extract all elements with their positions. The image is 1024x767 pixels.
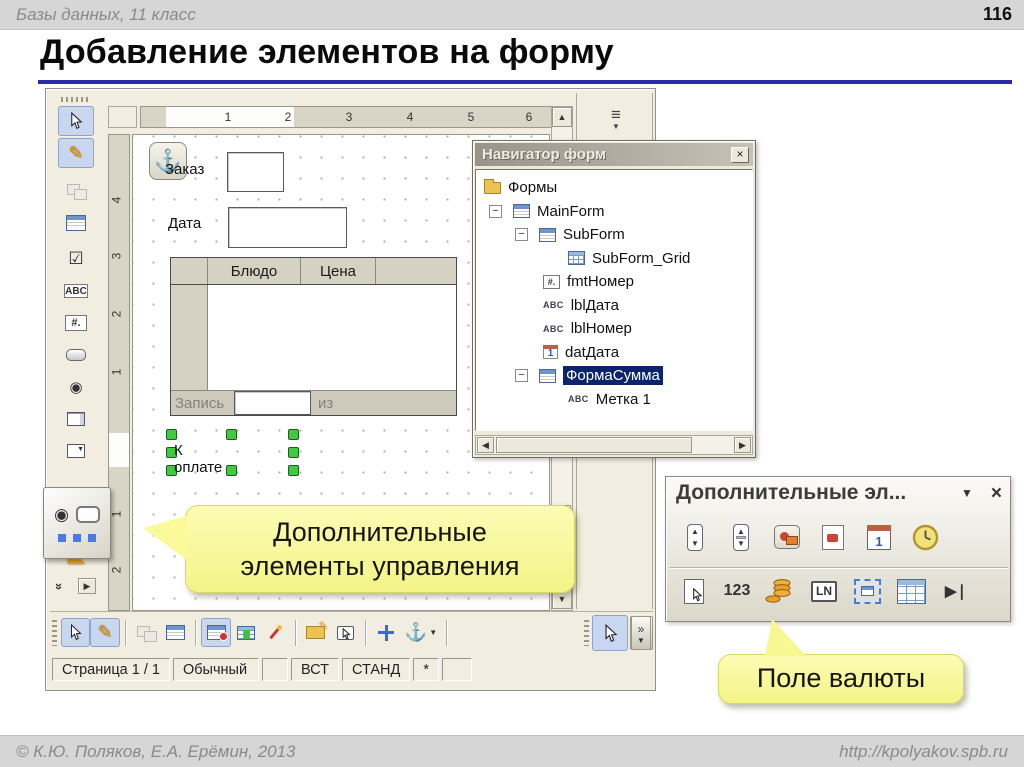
form-navigator-window: Навигатор форм × Формы − MainForm − SubF… bbox=[472, 140, 756, 458]
time-field-control[interactable] bbox=[904, 515, 946, 559]
grid-column-empty bbox=[376, 258, 456, 284]
tree-item-label: datДата bbox=[565, 344, 619, 361]
scrollbar-icon: ▲▼ bbox=[733, 524, 749, 551]
caret-down-icon: ▼ bbox=[429, 628, 437, 637]
slide-footer-bar: © К.Ю. Поляков, Е.А. Ерёмин, 2013 http:/… bbox=[0, 735, 1024, 767]
chevrons-icon: » bbox=[638, 622, 645, 636]
tree-item-datdata[interactable]: 1 datДата bbox=[478, 341, 750, 365]
grid-data-area bbox=[208, 285, 456, 390]
toolbar-more-chevrons-icon[interactable]: » bbox=[52, 582, 67, 589]
control-properties-button[interactable] bbox=[131, 618, 161, 647]
formatted-field-icon: #. bbox=[65, 315, 87, 331]
status-page-style[interactable]: Обычный bbox=[173, 658, 259, 681]
form-icon bbox=[513, 204, 530, 218]
abc-label-icon: ABC bbox=[543, 324, 564, 334]
toolbar-separator bbox=[446, 620, 447, 646]
checkbox-icon: ☑ bbox=[68, 249, 83, 269]
more-controls-callout: Дополнительные элементы управления bbox=[185, 505, 575, 593]
move-arrows-icon bbox=[378, 625, 394, 641]
tree-item-subform-grid[interactable]: SubForm_Grid bbox=[478, 247, 750, 271]
toolbar-separator bbox=[365, 620, 366, 646]
control-properties-icon bbox=[137, 626, 155, 640]
tree-item-lbldata[interactable]: ABC lblДата bbox=[478, 294, 750, 318]
record-number-input[interactable] bbox=[234, 391, 311, 415]
focus-box-icon bbox=[337, 626, 354, 640]
radio-button-icon: ◉ bbox=[54, 505, 69, 525]
numeric-field-icon: 123 bbox=[724, 582, 751, 600]
grid-record-navigator: Запись из bbox=[171, 390, 456, 415]
toolbar-separator bbox=[195, 620, 196, 646]
record-label: Запись bbox=[171, 391, 234, 415]
status-page[interactable]: Страница 1 / 1 bbox=[52, 658, 170, 681]
scrollbar-control[interactable]: ▲▼ bbox=[720, 515, 762, 559]
anchor-icon: ⚓ bbox=[405, 622, 427, 643]
table-grid-icon bbox=[897, 579, 926, 604]
status-bar: Страница 1 / 1 Обычный ВСТ СТАНД * bbox=[50, 655, 651, 684]
tree-item-metka1[interactable]: ABC Метка 1 bbox=[478, 388, 750, 412]
ruler-page-area bbox=[109, 433, 129, 467]
record-of-label: из bbox=[311, 391, 456, 415]
change-anchor-button[interactable]: ⚓ ▼ bbox=[401, 618, 441, 647]
currency-coins-icon bbox=[765, 577, 795, 605]
image-control-icon bbox=[822, 525, 844, 550]
form-icon bbox=[539, 369, 556, 383]
control-properties-icon bbox=[67, 184, 85, 198]
option-button-control-button[interactable]: ◉ bbox=[58, 372, 94, 402]
grid-green-icon bbox=[237, 626, 255, 640]
selection-handle[interactable] bbox=[226, 429, 237, 440]
ruler-number: 1 bbox=[109, 511, 123, 518]
navigation-bar-control[interactable]: ▶❘ bbox=[936, 569, 976, 613]
grid-header-row: Блюдо Цена bbox=[171, 258, 456, 285]
more-controls-button[interactable]: ◉ bbox=[43, 487, 111, 559]
table-control[interactable] bbox=[891, 569, 931, 613]
ruler-number: 6 bbox=[526, 110, 533, 124]
ruler-number: 2 bbox=[109, 311, 123, 318]
list-box-control-button[interactable] bbox=[58, 404, 94, 434]
pencil-icon: ✎ bbox=[98, 622, 113, 643]
form-navigator-button[interactable] bbox=[201, 618, 231, 647]
date-field-control[interactable]: 1 bbox=[858, 515, 900, 559]
order-text-input[interactable] bbox=[227, 152, 284, 192]
navigator-title: Навигатор форм bbox=[482, 146, 731, 163]
callout-text: Поле валюты bbox=[719, 663, 963, 694]
callout-tail bbox=[143, 516, 187, 560]
control-wizards-button[interactable] bbox=[261, 618, 291, 647]
selection-handle[interactable] bbox=[288, 465, 299, 476]
image-button-control[interactable] bbox=[766, 515, 808, 559]
pattern-field-icon: LN bbox=[811, 581, 837, 602]
tree-item-label-selected: ФормаСумма bbox=[563, 366, 663, 385]
spin-button-icon: ▲▼ bbox=[687, 524, 703, 551]
status-empty-cell bbox=[262, 658, 288, 681]
copyright-label: © К.Ю. Поляков, Е.А. Ерёмин, 2013 bbox=[16, 742, 296, 762]
group-box-control[interactable] bbox=[847, 569, 887, 613]
toolbar-separator bbox=[295, 620, 296, 646]
table-grid-icon bbox=[568, 251, 585, 265]
ruler-number: 3 bbox=[109, 253, 123, 260]
callout-tail bbox=[765, 619, 806, 656]
auto-control-focus-button[interactable] bbox=[331, 618, 361, 647]
ruler-number: 1 bbox=[225, 110, 232, 124]
selection-handle[interactable] bbox=[288, 429, 299, 440]
push-button-icon bbox=[76, 506, 100, 523]
tree-item-mainform[interactable]: − MainForm bbox=[478, 200, 750, 224]
close-icon[interactable]: × bbox=[991, 484, 1002, 503]
tree-item-label: lblНомер bbox=[571, 320, 632, 337]
abc-label-icon: ABC bbox=[543, 300, 564, 310]
selection-handle[interactable] bbox=[288, 447, 299, 458]
close-button[interactable]: × bbox=[731, 147, 749, 163]
image-control[interactable] bbox=[812, 515, 854, 559]
numeric-field-control[interactable]: 123 bbox=[717, 569, 757, 613]
label-control-button[interactable]: ABC bbox=[58, 276, 94, 306]
cursor-arrow-icon bbox=[69, 624, 82, 641]
date-field-label: Дата bbox=[168, 215, 201, 232]
form-properties-button[interactable] bbox=[58, 208, 94, 238]
slide-header-bar: Базы данных, 11 класс 116 bbox=[0, 0, 1024, 30]
image-button-icon bbox=[774, 525, 800, 549]
calendar-icon: 1 bbox=[543, 345, 558, 359]
selection-handle[interactable] bbox=[166, 429, 177, 440]
ruler-number: 4 bbox=[109, 197, 123, 204]
file-selection-icon bbox=[684, 579, 704, 604]
ruler-number: 4 bbox=[407, 110, 414, 124]
tree-item-label: MainForm bbox=[537, 203, 605, 220]
scrollbar-thumb[interactable] bbox=[496, 437, 692, 453]
callout-text-line2: элементы управления bbox=[186, 550, 574, 584]
additional-toolbar-title: Дополнительные эл... bbox=[676, 481, 961, 505]
form-properties-button[interactable] bbox=[161, 618, 191, 647]
pattern-field-control[interactable]: LN bbox=[804, 569, 844, 613]
combo-box-icon bbox=[67, 444, 85, 458]
caret-down-icon[interactable]: ▼ bbox=[961, 486, 973, 500]
toolbar-separator bbox=[125, 620, 126, 646]
ruler-number: 5 bbox=[468, 110, 475, 124]
folder-icon bbox=[484, 182, 501, 194]
toolbar-row-separator bbox=[670, 567, 1008, 568]
select-button[interactable] bbox=[592, 615, 628, 651]
form-design-toolbar: ✎ ⚓ ▼ » ▼ bbox=[50, 611, 653, 653]
grid-row-selector-header bbox=[171, 258, 208, 284]
design-mode-button[interactable]: ✎ bbox=[58, 138, 94, 168]
tree-item-label: Метка 1 bbox=[596, 391, 651, 408]
formatted-field-button[interactable]: #. bbox=[58, 308, 94, 338]
position-size-button[interactable] bbox=[371, 618, 401, 647]
radio-button-icon: ◉ bbox=[69, 378, 82, 396]
form-icon bbox=[539, 228, 556, 242]
design-mode-button[interactable]: ✎ bbox=[90, 618, 120, 647]
toolbar-grip[interactable] bbox=[584, 620, 589, 646]
status-modified-flag[interactable]: * bbox=[413, 658, 439, 681]
checkbox-control-button[interactable]: ☑ bbox=[58, 244, 94, 274]
toolbar-overflow-row: » ▶ bbox=[56, 578, 96, 594]
vertical-ruler[interactable]: 4 3 2 1 1 2 bbox=[108, 134, 130, 611]
tree-item-lblnomer[interactable]: ABC lblНомер bbox=[478, 317, 750, 341]
form-navigator-icon bbox=[207, 625, 226, 640]
caret-down-icon: ▼ bbox=[612, 122, 620, 131]
list-box-icon bbox=[67, 412, 85, 426]
callout-text-line1: Дополнительные bbox=[186, 516, 574, 550]
select-button[interactable] bbox=[61, 618, 91, 647]
push-button-control-button[interactable] bbox=[58, 340, 94, 370]
grid-column-dish[interactable]: Блюдо bbox=[208, 258, 301, 284]
control-properties-button[interactable] bbox=[58, 176, 94, 206]
group-box-icon bbox=[854, 579, 881, 604]
additional-toolbar-title-bar[interactable]: Дополнительные эл... ▼ × bbox=[666, 477, 1010, 509]
selection-handle[interactable] bbox=[226, 465, 237, 476]
navigator-horizontal-scrollbar[interactable]: ◀ ▶ bbox=[475, 435, 753, 455]
date-field-icon: 1 bbox=[867, 525, 891, 550]
horizontal-ruler[interactable]: 1 2 3 4 5 6 bbox=[140, 106, 561, 128]
toolbar-grip[interactable] bbox=[52, 620, 57, 646]
order-field-label: Заказ bbox=[165, 161, 204, 178]
more-dots-icon bbox=[58, 534, 96, 542]
toolbar-options-button[interactable]: ≡ ▼ bbox=[601, 105, 631, 133]
status-insert-mode[interactable]: ВСТ bbox=[291, 658, 339, 681]
collapse-icon[interactable]: − bbox=[515, 369, 528, 382]
formatted-field-icon: #. bbox=[543, 275, 560, 289]
tree-item-forms[interactable]: Формы bbox=[478, 176, 750, 200]
currency-field-callout: Поле валюты bbox=[718, 654, 964, 704]
ruler-number: 2 bbox=[285, 110, 292, 124]
title-underline bbox=[38, 80, 1012, 84]
additional-controls-toolbar: Дополнительные эл... ▼ × ▲▼ ▲▼ 1 123 LN … bbox=[665, 476, 1011, 622]
combo-box-control-button[interactable] bbox=[58, 436, 94, 466]
status-selection-mode[interactable]: СТАНД bbox=[342, 658, 410, 681]
form-window-icon bbox=[166, 625, 185, 640]
tree-item-label: SubForm bbox=[563, 226, 625, 243]
clock-icon bbox=[912, 524, 939, 551]
collapse-icon[interactable]: − bbox=[515, 228, 528, 241]
form-window-icon bbox=[66, 215, 86, 231]
caret-down-icon: ▼ bbox=[637, 636, 645, 645]
ruler-number: 3 bbox=[346, 110, 353, 124]
tree-item-label: lblДата bbox=[571, 297, 619, 314]
status-empty-cell bbox=[442, 658, 472, 681]
navigator-tree[interactable]: Формы − MainForm − SubForm SubForm_Grid … bbox=[475, 169, 753, 431]
open-in-design-mode-button[interactable] bbox=[301, 618, 331, 647]
select-button[interactable] bbox=[58, 106, 94, 136]
scroll-up-button[interactable]: ▲ bbox=[552, 107, 572, 127]
currency-field-control[interactable] bbox=[760, 569, 800, 613]
push-button-icon bbox=[66, 349, 86, 361]
folder-pencil-icon bbox=[306, 626, 325, 639]
tree-item-subform[interactable]: − SubForm bbox=[478, 223, 750, 247]
select-mini-toolbar: » ▼ bbox=[584, 613, 654, 653]
toolbar-overflow-button[interactable]: » ▼ bbox=[631, 616, 651, 650]
page-number: 116 bbox=[983, 4, 1012, 25]
toolbar-expand-arrow[interactable]: ▶ bbox=[78, 578, 96, 594]
ruler-number: 1 bbox=[109, 369, 123, 376]
grid-body bbox=[171, 285, 456, 390]
tree-item-formasumma[interactable]: − ФормаСумма bbox=[478, 364, 750, 388]
wizard-wand-icon bbox=[267, 625, 283, 641]
grid-column-price[interactable]: Цена bbox=[301, 258, 376, 284]
page-title: Добавление элементов на форму bbox=[40, 33, 614, 72]
status-filler bbox=[475, 658, 646, 681]
cursor-arrow-icon bbox=[69, 112, 83, 130]
date-text-input[interactable] bbox=[228, 207, 347, 248]
navigator-title-bar[interactable]: Навигатор форм × bbox=[475, 143, 753, 166]
ruler-number: 2 bbox=[109, 567, 123, 574]
file-selection-control[interactable] bbox=[674, 569, 714, 613]
ruler-corner bbox=[108, 106, 137, 128]
abc-label-icon: ABC bbox=[64, 284, 88, 298]
course-label: Базы данных, 11 класс bbox=[16, 5, 196, 25]
scroll-left-button[interactable]: ◀ bbox=[477, 437, 494, 453]
site-url[interactable]: http://kpolyakov.spb.ru bbox=[839, 742, 1008, 762]
tree-item-label: Формы bbox=[508, 179, 557, 196]
tree-item-label: SubForm_Grid bbox=[592, 250, 690, 267]
toolbar-grip[interactable] bbox=[61, 97, 91, 102]
tree-item-label: fmtНомер bbox=[567, 273, 634, 290]
tree-item-fmtnomer[interactable]: #. fmtНомер bbox=[478, 270, 750, 294]
add-field-button[interactable] bbox=[231, 618, 261, 647]
subform-grid[interactable]: Блюдо Цена Запись из bbox=[170, 257, 457, 416]
abc-label-icon: ABC bbox=[568, 394, 589, 404]
cursor-arrow-icon bbox=[603, 624, 618, 643]
grid-row-selector-column bbox=[171, 285, 208, 390]
pencil-icon: ✎ bbox=[68, 143, 83, 164]
spin-button-control[interactable]: ▲▼ bbox=[674, 515, 716, 559]
navigation-bar-icon: ▶❘ bbox=[945, 582, 967, 600]
collapse-icon[interactable]: − bbox=[489, 205, 502, 218]
scroll-right-button[interactable]: ▶ bbox=[734, 437, 751, 453]
payment-label: К оплате bbox=[174, 442, 222, 476]
lines-icon: ≡ bbox=[611, 108, 621, 122]
